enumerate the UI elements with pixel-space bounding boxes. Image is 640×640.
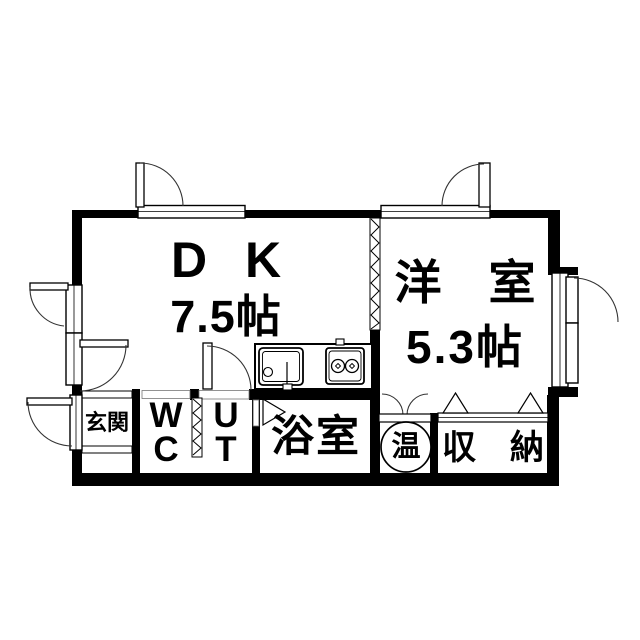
entrance-door-arc — [28, 402, 72, 446]
dk-top-door-arc — [140, 163, 183, 206]
right-bay-door-arc — [574, 278, 618, 322]
genkan-step-lower — [82, 446, 132, 453]
wall-top-middle — [245, 210, 381, 218]
room-label-bathroom: 浴室 — [260, 412, 372, 462]
room-label-dk: D K — [82, 230, 370, 290]
room-label-wc: W C — [140, 397, 192, 469]
wall-bottom — [72, 473, 559, 486]
sink-drain-icon — [264, 368, 273, 377]
kitchen-counter — [255, 339, 372, 390]
dk-top-door-leaf — [136, 163, 144, 207]
storage-fold-door-triangle-right — [518, 393, 543, 413]
right-door-leaf-panel — [566, 277, 578, 323]
genkan-step-upper — [82, 391, 132, 398]
west-top-door-arc — [442, 164, 484, 206]
wall-genkan-wc — [132, 389, 140, 473]
wall-right-upper — [548, 210, 560, 270]
heater-door-arc-left — [382, 394, 403, 415]
room-label-genkan: 玄関 — [82, 400, 132, 446]
wall-left-upper — [72, 210, 82, 287]
wall-dk-bottom — [249, 389, 372, 400]
right-lower-panel — [566, 323, 578, 383]
stove-burner-right-icon — [346, 360, 359, 373]
heater-closet-sill — [379, 414, 431, 422]
room-label-water-heater: 温 — [381, 422, 431, 472]
room-size-dk: 7.5帖 — [82, 292, 370, 340]
room-label-ut: U T — [200, 397, 252, 469]
kitchen-sink — [259, 348, 303, 385]
ut-door-arc — [207, 346, 251, 390]
ut-door-leaf — [203, 343, 212, 389]
left-lower-door-arc — [80, 345, 126, 391]
room-size-western-room: 5.3帖 — [382, 320, 548, 374]
entrance-door-leaf — [27, 398, 72, 405]
left-upper-door-arc — [30, 287, 64, 326]
storage-fold-door-triangle-left — [443, 393, 468, 413]
left-upper-door-leaf — [30, 283, 68, 290]
bath-door-opening — [253, 400, 259, 426]
left-lower-door-leaf — [80, 340, 128, 347]
room-label-storage: 収 納 — [438, 425, 548, 470]
west-top-door-leaf — [479, 163, 490, 207]
stove-burner-left-icon — [332, 360, 345, 373]
sink-faucet-base — [283, 384, 292, 390]
floor-plan: D K 7.5帖 洋 室 5.3帖 玄関 W C U T 浴室 温 収 納 — [0, 0, 640, 640]
wall-right-lower — [547, 395, 559, 475]
room-label-western-room: 洋 室 — [382, 250, 548, 314]
heater-door-arc-right — [407, 394, 428, 415]
